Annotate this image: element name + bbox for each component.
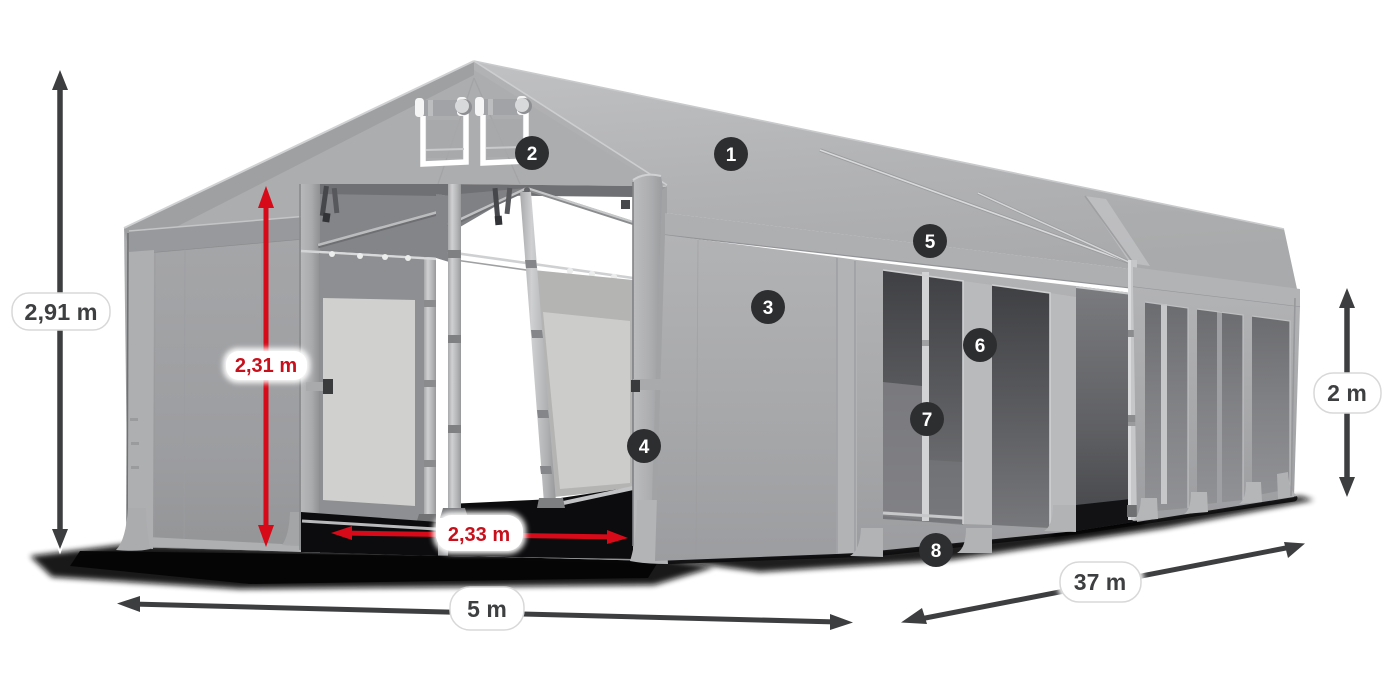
svg-text:6: 6 (975, 336, 986, 357)
svg-text:5 m: 5 m (467, 596, 507, 622)
svg-text:37 m: 37 m (1074, 569, 1126, 595)
svg-text:2 m: 2 m (1327, 380, 1367, 406)
svg-text:2,91 m: 2,91 m (24, 299, 97, 325)
svg-text:8: 8 (931, 541, 942, 562)
svg-text:2: 2 (527, 144, 538, 165)
svg-text:5: 5 (925, 232, 936, 253)
svg-text:2,31 m: 2,31 m (235, 355, 297, 377)
svg-text:4: 4 (639, 437, 650, 458)
svg-text:7: 7 (922, 410, 933, 431)
svg-text:1: 1 (726, 145, 737, 166)
svg-text:3: 3 (763, 298, 774, 319)
svg-text:2,33 m: 2,33 m (448, 524, 510, 546)
